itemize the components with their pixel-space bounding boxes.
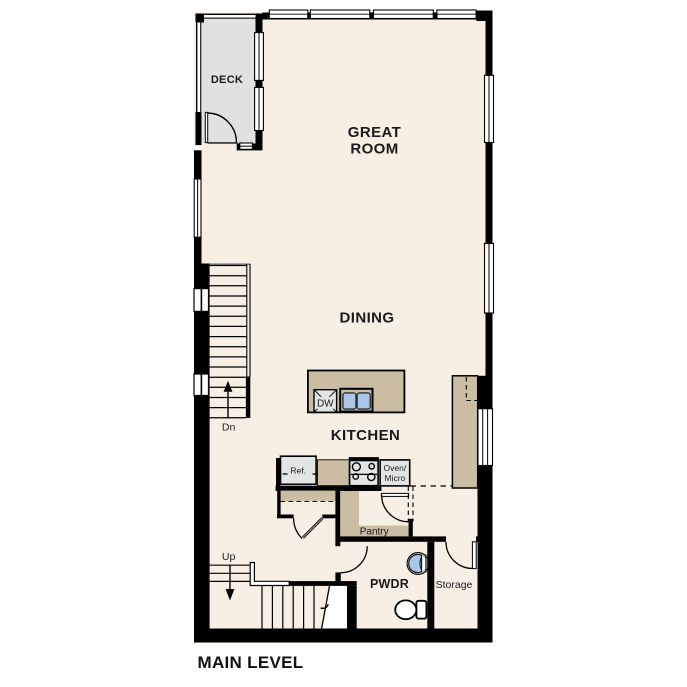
svg-text:Ref.: Ref. xyxy=(290,466,306,476)
svg-text:ROOM: ROOM xyxy=(350,141,398,158)
svg-text:DECK: DECK xyxy=(211,74,243,86)
svg-text:DINING: DINING xyxy=(340,310,395,327)
svg-text:MAIN LEVEL: MAIN LEVEL xyxy=(198,653,304,672)
svg-text:DW: DW xyxy=(317,398,334,409)
svg-text:PWDR: PWDR xyxy=(370,577,409,591)
svg-text:Up: Up xyxy=(222,551,236,563)
svg-text:KITCHEN: KITCHEN xyxy=(331,427,400,444)
svg-text:Storage: Storage xyxy=(436,579,473,591)
svg-text:Pantry: Pantry xyxy=(360,526,389,537)
svg-text:Oven/: Oven/ xyxy=(384,463,407,473)
svg-text:Dn: Dn xyxy=(222,422,236,434)
svg-text:Micro: Micro xyxy=(385,473,406,483)
svg-text:GREAT: GREAT xyxy=(348,124,401,141)
